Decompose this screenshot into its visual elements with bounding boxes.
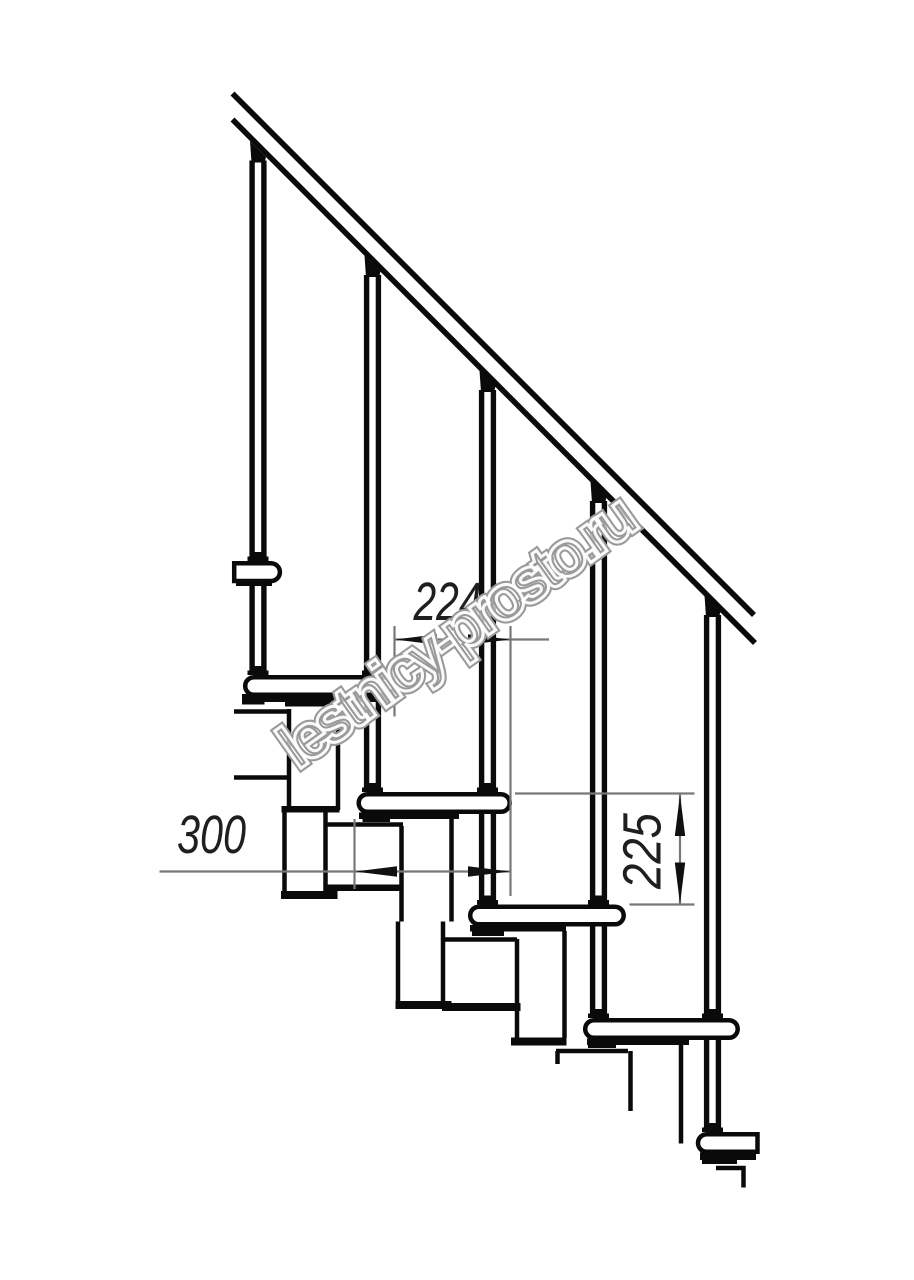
svg-text:225: 225 [613,812,673,890]
svg-text:300: 300 [177,805,246,865]
